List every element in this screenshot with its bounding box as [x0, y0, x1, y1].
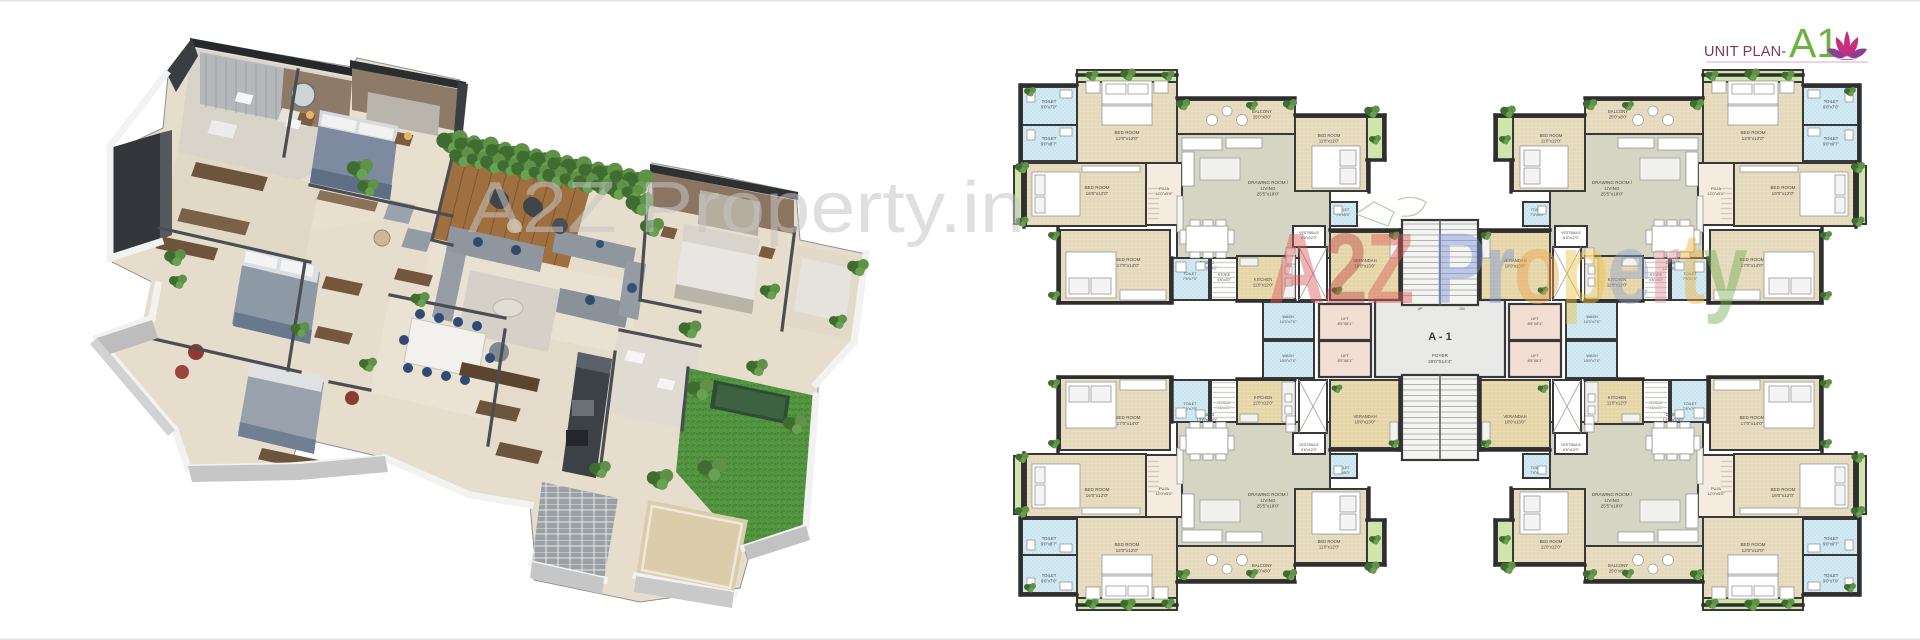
svg-text:A - 1: A - 1	[1428, 331, 1451, 343]
svg-text:VESTIBULE6'6"x12'0": VESTIBULE6'6"x12'0"	[1561, 443, 1581, 452]
svg-text:UNIT PLAN-: UNIT PLAN-	[1704, 44, 1786, 60]
svg-text:TOILET9'0"x8'7": TOILET9'0"x8'7"	[1823, 536, 1839, 546]
svg-text:VESTIBULE6'6"x12'0": VESTIBULE6'6"x12'0"	[1299, 443, 1319, 452]
svg-text:A2Z Property.in: A2Z Property.in	[468, 168, 1025, 248]
svg-text:BED ROOM17'0"x14'0": BED ROOM17'0"x14'0"	[1115, 257, 1140, 268]
svg-text:VERANDAH10'0"x13'0": VERANDAH10'0"x13'0"	[1503, 414, 1526, 424]
svg-text:VERANDAH10'0"x13'0": VERANDAH10'0"x13'0"	[1353, 414, 1376, 424]
svg-text:TOILET9'0"x7'0": TOILET9'0"x7'0"	[1823, 99, 1839, 109]
svg-text:BED ROOM16'0"x12'0": BED ROOM16'0"x12'0"	[1770, 185, 1795, 196]
svg-text:TOILET9'0"x8'7": TOILET9'0"x8'7"	[1041, 536, 1057, 546]
svg-text:BED ROOM11'0"x12'0": BED ROOM11'0"x12'0"	[1318, 539, 1341, 549]
svg-text:BALCONY25'0"x8'0": BALCONY25'0"x8'0"	[1608, 109, 1628, 119]
svg-text:TOILET7'6"x7'0": TOILET7'6"x7'0"	[1183, 272, 1198, 281]
svg-text:BED ROOM16'0"x12'0": BED ROOM16'0"x12'0"	[1084, 487, 1109, 498]
svg-text:KITCHEN11'0"x12'0": KITCHEN11'0"x12'0"	[1607, 395, 1628, 405]
svg-text:BALCONY25'0"x8'0": BALCONY25'0"x8'0"	[1252, 109, 1272, 119]
svg-text:BED ROOM17'0"x14'0": BED ROOM17'0"x14'0"	[1115, 415, 1140, 426]
svg-text:A2Z Property: A2Z Property	[1268, 213, 1748, 325]
svg-text:BED ROOM12'0"x12'0": BED ROOM12'0"x12'0"	[1114, 130, 1139, 141]
svg-text:TOILET9'0"x8'7": TOILET9'0"x8'7"	[1823, 136, 1839, 146]
svg-text:BED ROOM11'0"x12'0": BED ROOM11'0"x12'0"	[1540, 539, 1563, 549]
svg-text:TOILET9'0"x7'0": TOILET9'0"x7'0"	[1041, 99, 1057, 109]
svg-text:BED ROOM16'0"x12'0": BED ROOM16'0"x12'0"	[1770, 487, 1795, 498]
svg-text:BED ROOM12'0"x12'0": BED ROOM12'0"x12'0"	[1740, 130, 1765, 141]
svg-text:BED ROOM12'0"x12'0": BED ROOM12'0"x12'0"	[1740, 542, 1765, 553]
svg-text:TOILET9'0"x8'7": TOILET9'0"x8'7"	[1041, 136, 1057, 146]
svg-text:BED ROOM17'0"x14'0": BED ROOM17'0"x14'0"	[1739, 415, 1764, 426]
svg-text:BED ROOM12'0"x12'0": BED ROOM12'0"x12'0"	[1114, 542, 1139, 553]
svg-text:TOILET9'0"x7'0": TOILET9'0"x7'0"	[1823, 573, 1839, 583]
svg-text:TOILET9'0"x7'0": TOILET9'0"x7'0"	[1041, 573, 1057, 583]
svg-text:A1: A1	[1789, 20, 1839, 66]
svg-text:BED ROOM16'0"x12'0": BED ROOM16'0"x12'0"	[1084, 185, 1109, 196]
svg-text:KITCHEN11'0"x12'0": KITCHEN11'0"x12'0"	[1253, 395, 1274, 405]
svg-text:BED ROOM11'0"x12'0": BED ROOM11'0"x12'0"	[1318, 133, 1341, 143]
svg-text:BED ROOM11'0"x12'0": BED ROOM11'0"x12'0"	[1540, 133, 1563, 143]
